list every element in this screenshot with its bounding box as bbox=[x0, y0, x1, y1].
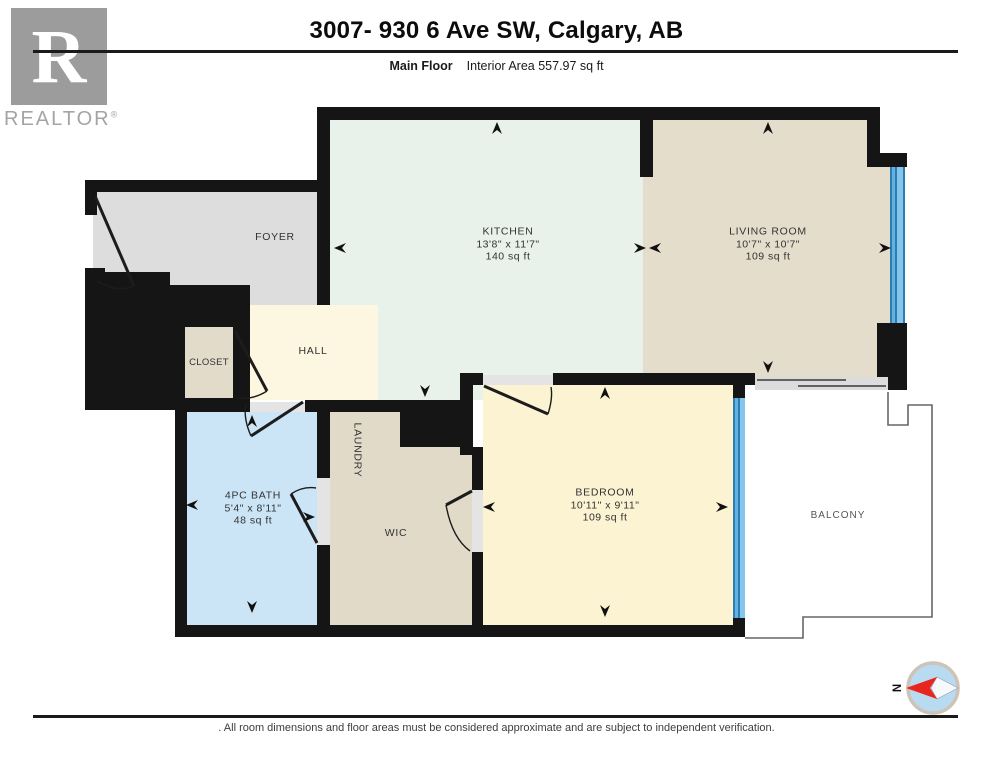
compass-icon: N bbox=[892, 663, 958, 713]
header-divider-line bbox=[33, 50, 958, 53]
bedroom-label: BEDROOM 10'11" x 9'11" 109 sq ft bbox=[571, 486, 640, 524]
door-wic bbox=[446, 491, 472, 551]
door-closet bbox=[235, 331, 267, 398]
hall-label: HALL bbox=[298, 345, 327, 358]
living-room-label: LIVING ROOM 10'7" x 10'7" 109 sq ft bbox=[729, 225, 807, 263]
wic-label: WIC bbox=[385, 527, 408, 540]
floorplan-page: R REALTOR® 3007- 930 6 Ave SW, Calgary, … bbox=[0, 0, 993, 768]
sliding-door-lines bbox=[757, 380, 886, 386]
door-bath bbox=[245, 402, 303, 436]
foyer-label: FOYER bbox=[255, 231, 295, 244]
bath-label: 4PC BATH 5'4" x 8'11" 48 sq ft bbox=[225, 489, 282, 527]
door-bath-wic bbox=[291, 488, 317, 543]
compass-north-label: N bbox=[892, 684, 904, 692]
laundry-label: LAUNDRY bbox=[351, 423, 364, 478]
disclaimer-text: . All room dimensions and floor areas mu… bbox=[0, 722, 993, 734]
footer-divider-line bbox=[33, 715, 958, 718]
door-foyer bbox=[95, 196, 134, 289]
door-bedroom bbox=[484, 386, 552, 414]
balcony-label: BALCONY bbox=[811, 510, 866, 523]
kitchen-label: KITCHEN 13'8" x 11'7" 140 sq ft bbox=[476, 225, 539, 263]
floorplan-annotations: N bbox=[0, 0, 993, 768]
closet-label: CLOSET bbox=[189, 357, 229, 370]
measure-arrows bbox=[186, 122, 891, 617]
